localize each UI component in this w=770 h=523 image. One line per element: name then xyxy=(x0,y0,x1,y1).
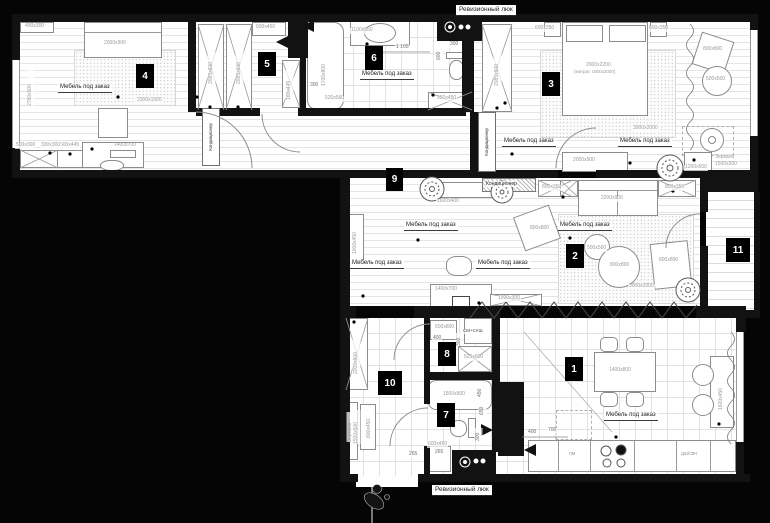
dim-label: 3000x2000 xyxy=(632,126,659,132)
dim-label: 520x560 xyxy=(324,96,345,102)
armchair-living xyxy=(650,240,693,290)
dim-label: 2200x900 xyxy=(600,196,624,202)
dim-label: 1400x700 xyxy=(113,143,137,149)
cabinet-room4 xyxy=(57,150,83,168)
custom-furniture-label: Мебель под заказ xyxy=(350,260,404,269)
counter-divider xyxy=(676,441,677,471)
dim-label: 600x350 xyxy=(534,26,555,32)
room-badge-5: 5 xyxy=(258,52,276,76)
dim-label: 600 xyxy=(436,46,444,60)
wall xyxy=(424,380,430,404)
wall-balcony xyxy=(754,192,760,318)
window-kitchen xyxy=(736,332,744,442)
dim-label: 300 xyxy=(449,42,459,48)
air-conditioner-unit: Кондиционер xyxy=(202,108,220,166)
dim-label: 1200x500 xyxy=(684,165,708,171)
dim-label: 525x600 xyxy=(463,355,484,361)
desk-monitor xyxy=(110,150,136,158)
dim-label: 2000x600 xyxy=(353,334,361,374)
dim-label: 2300x1500 xyxy=(136,98,163,104)
wall xyxy=(470,112,478,172)
air-conditioner-label: Кондиционер xyxy=(485,128,490,156)
dim-label: 800x800 xyxy=(529,226,550,232)
dim-label: 1100x550 xyxy=(350,28,374,34)
dim-label: 1500x500 xyxy=(714,162,738,168)
dining-chair xyxy=(600,337,618,352)
dim-label: 3000x2000 xyxy=(628,284,655,290)
dim-label: 2000x500 xyxy=(572,158,596,164)
dim-label: 300 xyxy=(309,83,319,89)
dim-label: 600x350 xyxy=(648,26,669,32)
dim-label: 265 xyxy=(434,450,444,456)
dim-label: 265 xyxy=(408,452,418,458)
wall-room8 xyxy=(440,306,500,318)
room-badge-1: 1 xyxy=(565,357,583,381)
dim-label: 700 xyxy=(547,428,557,434)
dim-label: 800x350 xyxy=(664,185,685,191)
bed-size-label: 2000x2200 xyxy=(585,63,612,69)
wall-balcony xyxy=(700,192,708,212)
dim-label: 800x450 xyxy=(366,412,374,438)
wall xyxy=(750,136,758,174)
dim-label: 300 xyxy=(456,333,464,346)
dim-label: 300 xyxy=(475,428,483,441)
dim-label: 800x800 xyxy=(609,263,630,269)
wall xyxy=(12,14,20,60)
custom-furniture-label: Мебель под заказ xyxy=(618,138,672,147)
dim-label: 800x800 xyxy=(702,47,723,53)
wall xyxy=(12,14,758,22)
counter-divider xyxy=(634,441,635,471)
dim-label: 450 xyxy=(477,384,485,397)
dim-label: 1400x800 xyxy=(608,368,632,374)
room-badge-8: 8 xyxy=(438,342,456,366)
dim-label: 1600x400 xyxy=(436,199,460,205)
dim-label: 650 xyxy=(479,402,487,415)
dim-label: 500x500 xyxy=(705,77,726,83)
window-left xyxy=(12,60,20,148)
wall xyxy=(418,474,750,482)
dim-label: 500x500 xyxy=(586,246,607,252)
pillow xyxy=(609,25,646,42)
counter-divider xyxy=(590,441,591,471)
person-icon xyxy=(361,485,389,513)
revision-hatch-label-bottom: Ревизионный люк xyxy=(432,485,492,496)
wall xyxy=(424,446,430,476)
room-badge-11: 11 xyxy=(726,238,750,262)
dim-label: 600x450 xyxy=(255,25,276,31)
wall-room4 xyxy=(188,22,196,112)
dim-label: 1400x700 xyxy=(434,287,458,293)
dim-label: 1500x900 xyxy=(442,392,466,398)
washer-dryer-label: СМ+СУШ xyxy=(462,329,484,334)
dim-label: 1 100 xyxy=(395,45,410,51)
dim-label: 330x300 xyxy=(40,143,61,149)
revision-hatch-label-top: Ревизионный люк xyxy=(456,5,516,16)
dim-label: 500x800 xyxy=(434,325,455,331)
bar-stool xyxy=(692,364,714,386)
dim-label: 1500x500 xyxy=(353,410,361,444)
oven-microwave-label: дш/свч xyxy=(680,452,698,458)
desk-chair xyxy=(446,256,472,276)
sofa-back-line xyxy=(579,190,657,191)
custom-furniture-label: Мебель под заказ xyxy=(558,222,612,231)
air-conditioner-label: Кондиционер xyxy=(209,123,214,151)
dim-label: 400 xyxy=(432,336,442,342)
wall xyxy=(340,474,358,482)
custom-furniture-label: Мебель под заказ xyxy=(404,222,458,231)
dim-label: 2085x600 xyxy=(208,44,216,84)
room-badge-2: 2 xyxy=(566,244,584,268)
dim-label: 2780x500 xyxy=(27,70,35,106)
dining-chair xyxy=(626,392,644,407)
armchair-room4 xyxy=(98,108,128,138)
room-badge-9: 9 xyxy=(386,168,403,191)
dim-label: 1700x800 xyxy=(321,48,329,86)
dim-label: 2000x900 xyxy=(103,41,127,47)
room-badge-7: 7 xyxy=(437,403,455,427)
mirror-label: Зеркало xyxy=(714,155,735,161)
dim-label: 450x300 xyxy=(24,24,45,30)
dim-label: 1600x450 xyxy=(718,374,726,410)
entry-step xyxy=(356,476,418,487)
bed-mattress-label: (матрас 1800x2000) xyxy=(573,70,616,75)
wall xyxy=(12,170,348,178)
wall xyxy=(298,108,466,116)
custom-furniture-label: Мебель под заказ xyxy=(58,84,112,93)
counter-divider xyxy=(710,441,711,471)
bar-stool xyxy=(692,394,714,416)
shaft xyxy=(498,382,524,456)
shaft-closet5 xyxy=(288,18,308,58)
dashed-zone-kitchen xyxy=(556,410,592,440)
room-badge-3: 3 xyxy=(542,72,560,96)
air-conditioner-unit: Кондиционер xyxy=(478,112,496,172)
wall xyxy=(750,14,758,30)
cabinet-x-room4 xyxy=(20,150,58,168)
dining-chair xyxy=(600,392,618,407)
dim-label: 500x300 xyxy=(15,143,36,149)
dim-label: 2085x600 xyxy=(236,44,244,84)
custom-furniture-label: Мебель под заказ xyxy=(360,71,414,80)
dim-label: 400 xyxy=(527,430,537,436)
wall xyxy=(700,170,758,192)
floor-plan: 450x300 2000x900 2300x1500 2780x500 Мебе… xyxy=(0,0,770,523)
wall xyxy=(596,170,700,178)
custom-furniture-label: Мебель под заказ xyxy=(502,138,556,147)
dim-label: 600x450 xyxy=(427,442,448,448)
dim-label: 800x800 xyxy=(658,258,679,264)
wall xyxy=(736,442,744,482)
room-badge-6: 6 xyxy=(365,46,383,70)
dim-label: 600x445 xyxy=(59,143,80,149)
vanity-black-bath7 xyxy=(452,450,496,474)
dining-chair xyxy=(626,337,644,352)
wall xyxy=(340,306,356,318)
wall xyxy=(424,372,498,380)
sofa-back-line xyxy=(85,32,161,33)
entry-door-line xyxy=(371,487,373,523)
side-table-living xyxy=(560,180,578,197)
custom-furniture-label: Мебель под заказ xyxy=(476,260,530,269)
wall xyxy=(424,318,430,374)
wall xyxy=(348,170,558,178)
room-badge-10: 10 xyxy=(378,371,402,395)
kitchen-counter xyxy=(528,440,736,472)
vanity-black-bath6 xyxy=(437,15,482,41)
dim-label: 1000x450 xyxy=(352,224,360,254)
dim-label: 800x350 xyxy=(541,185,562,191)
dim-label: 1200x300 xyxy=(497,296,521,302)
custom-furniture-label: Мебель под заказ xyxy=(604,412,658,421)
air-conditioner-label: Кондиционер xyxy=(486,181,517,187)
dishwasher-label: пм xyxy=(568,452,576,458)
pillow xyxy=(566,25,603,42)
window-right xyxy=(750,30,758,136)
room-badge-4: 4 xyxy=(136,64,154,88)
wall xyxy=(414,306,440,318)
pouf-center xyxy=(708,136,716,144)
counter-divider xyxy=(558,441,559,471)
dim-label: 950x450 xyxy=(436,96,457,102)
dim-label: 160x445 xyxy=(286,70,294,100)
dim-label: 2085x600 xyxy=(494,46,502,86)
wall xyxy=(736,306,746,332)
